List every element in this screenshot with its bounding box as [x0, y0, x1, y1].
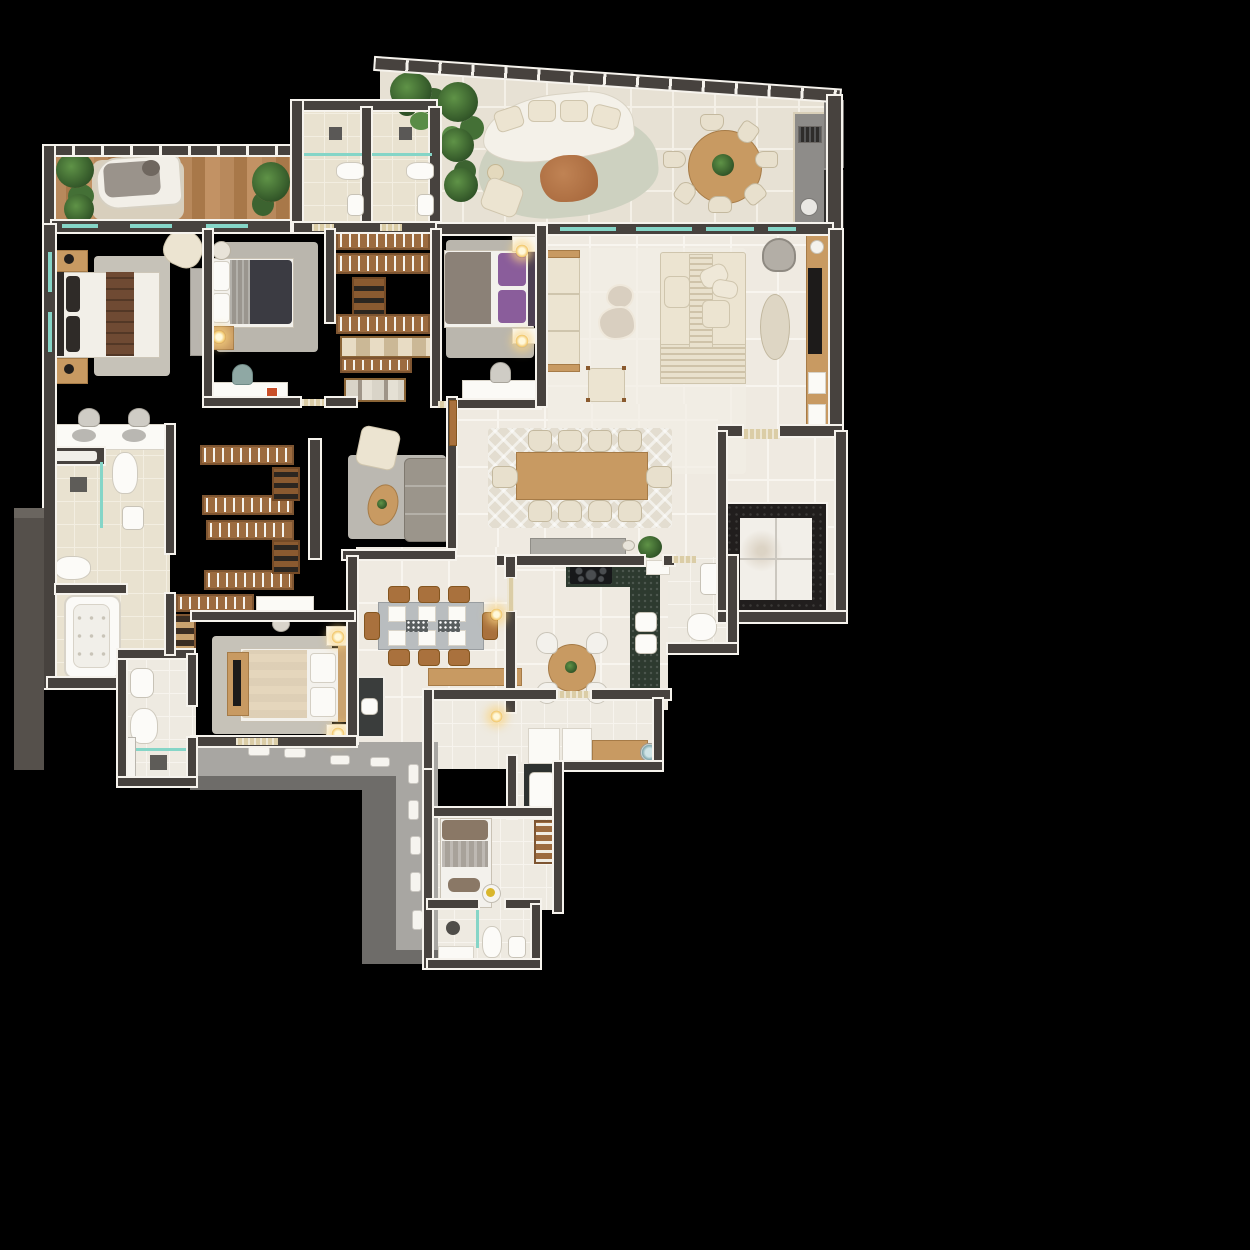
kitchen-table-plant: [565, 661, 577, 673]
ottoman-large: [598, 306, 636, 340]
toilet: [336, 162, 364, 180]
bedroom4-headboard: [338, 646, 346, 722]
closet-rack: [340, 357, 412, 373]
terrace-table-plant: [712, 154, 734, 176]
kitchen-door-threshold: [507, 578, 514, 611]
closet-rack: [336, 253, 430, 274]
dining-chair: [558, 430, 582, 452]
oval-travertine-table: [760, 294, 790, 360]
lounge-cushion: [702, 300, 730, 328]
shower-drain: [70, 477, 87, 492]
side-table-flowers: [486, 888, 495, 897]
floor-plan-canvas: [0, 0, 1250, 1250]
bed3-living-wall: [537, 226, 546, 406]
threshold: [236, 738, 278, 745]
laundry-appliance: [562, 728, 592, 764]
terrace-chair: [755, 151, 778, 168]
table-lamp-icon: [64, 364, 74, 374]
accent-chair: [588, 368, 625, 402]
service-bed-top-wall: [428, 808, 562, 816]
laundry-left-wall: [424, 690, 432, 772]
elevator-marble-cab: [740, 518, 812, 600]
vanity-stool: [78, 408, 100, 427]
sconce-glow: [490, 608, 503, 621]
shoe-shelf: [352, 277, 386, 317]
laundry-right-wall: [654, 699, 662, 769]
bathtub-basin: [73, 604, 110, 668]
laundry-cabinet: [528, 728, 560, 764]
window-glass: [206, 224, 248, 228]
masterbath-east-wall-lower: [166, 594, 174, 654]
tub-room-wall: [56, 585, 126, 593]
pedestal-sink: [347, 194, 364, 216]
service-left-wall: [424, 770, 432, 968]
window-glass: [62, 224, 98, 228]
balcony-left-wall: [44, 146, 54, 232]
bath4-top-wall: [118, 650, 194, 658]
desk-chair: [490, 362, 511, 383]
powder-toilet: [687, 613, 717, 641]
bath4-left-wall: [118, 650, 126, 786]
corridor-door-leaf: [412, 910, 423, 930]
service-bath-right-wall: [532, 905, 540, 967]
place-setting: [448, 630, 466, 646]
service-bed-blanket: [442, 841, 488, 867]
closet2-east-wall: [310, 440, 320, 558]
toilet: [406, 162, 434, 180]
threshold: [302, 399, 324, 406]
bedroom2-pillow: [212, 293, 230, 323]
dining-chair: [646, 466, 672, 488]
bed4-top-wall: [192, 612, 354, 620]
living-right-wall: [830, 230, 842, 432]
breakfast-chair: [448, 649, 470, 666]
bed2-bottom-wall: [204, 398, 300, 406]
stone-console: [530, 538, 626, 558]
towel-niche: [53, 451, 97, 461]
master-headboard: [54, 272, 64, 356]
shower-glass: [100, 462, 103, 528]
hall-right-wall: [836, 432, 846, 620]
corridor-door-leaf: [248, 746, 270, 756]
sideboard-tray: [808, 404, 826, 426]
service-bath-divider: [428, 900, 478, 908]
corridor-door-leaf: [408, 800, 419, 820]
bedroom3-desk: [462, 380, 538, 402]
sconce-glow: [490, 710, 503, 723]
bed2-closet-wall: [326, 230, 334, 322]
window-glass: [48, 252, 52, 292]
laundry-bottom-wall: [558, 762, 662, 770]
console-bowl: [622, 540, 635, 551]
service-toilet: [482, 926, 502, 958]
kitchen-bottom-wall-2: [592, 690, 670, 699]
balcony-plant: [252, 162, 290, 202]
terrace-chair: [708, 196, 732, 213]
lounge-slat-deck: [660, 344, 746, 384]
tv-flat-icon: [233, 660, 241, 706]
dining-chair: [588, 500, 612, 522]
console-plant: [638, 536, 662, 558]
bed3-top-wall: [437, 224, 547, 234]
balcony-plant: [64, 194, 94, 224]
living-sofa: [545, 254, 580, 368]
window-glass: [560, 227, 616, 231]
bedroom4-pillow: [310, 653, 336, 683]
window-glass: [768, 227, 796, 231]
closet2-rack: [206, 520, 294, 540]
place-setting: [418, 630, 436, 646]
dining-table: [516, 452, 648, 500]
terrace-plant: [440, 128, 474, 162]
service-bottom-wall: [428, 960, 540, 968]
bedroom2-blanket-gray: [230, 260, 250, 324]
terrace-chair: [663, 151, 686, 168]
corridor-door-leaf: [284, 748, 306, 758]
bbq-sink: [800, 198, 818, 216]
daybed-pillow: [142, 160, 160, 176]
balcony-plant: [56, 152, 94, 188]
nook-table-plant: [377, 499, 387, 509]
dining-chair: [528, 430, 552, 452]
dining-chair: [492, 466, 518, 488]
corridor-door-leaf: [408, 764, 419, 784]
master-bed2-wall: [204, 230, 212, 406]
master-tv-panel: [190, 268, 205, 356]
nightstand-lamp-glow: [515, 334, 529, 348]
threshold: [380, 224, 402, 231]
shower-glass: [476, 908, 479, 948]
place-setting: [388, 606, 406, 622]
toilet: [112, 452, 138, 494]
terrace-plant: [438, 82, 478, 122]
bathroom4-sink: [130, 668, 154, 698]
bedroom2-pillow: [212, 261, 230, 291]
bedroom4-pillow: [310, 687, 336, 717]
desk-chair: [232, 364, 253, 385]
window-glass: [48, 312, 52, 352]
open-door-leaf: [449, 400, 457, 446]
terrace-plant: [444, 168, 478, 202]
bedroom2-duvet: [250, 260, 292, 324]
sofa-cushion: [560, 100, 588, 122]
closet2-rack: [176, 594, 254, 612]
shower-head-icon: [329, 127, 342, 140]
table-tray: [406, 620, 428, 632]
bath4-bottom-wall: [118, 778, 196, 786]
kitchen-sink: [635, 612, 657, 632]
terrace-coffee-table: [540, 155, 598, 202]
laundry-tank-sink: [529, 772, 555, 810]
entry-threshold: [742, 429, 780, 439]
corridor-door-leaf: [410, 836, 421, 855]
breakfast-chair: [388, 586, 410, 603]
dining-chair: [618, 500, 642, 522]
shower-glass: [372, 153, 432, 156]
swing-chair: [762, 238, 796, 272]
corridor-door-leaf: [370, 757, 390, 767]
vanity-basin: [72, 429, 96, 442]
breakfast-chair: [388, 649, 410, 666]
service-right-wall: [554, 762, 562, 912]
master-pillow: [66, 316, 80, 352]
closet1-bottom-wall: [326, 398, 356, 406]
shower-glass: [304, 153, 362, 156]
bed4-east-wall: [348, 557, 357, 743]
service-bed-cushion: [448, 878, 480, 892]
wall-lamp-glow: [212, 330, 226, 344]
terrace-chair: [700, 114, 724, 131]
closet-bed3-wall: [432, 230, 440, 406]
hall-bottom-wall: [718, 612, 846, 622]
terrace-right-wall: [828, 96, 841, 230]
lounge-cushion: [664, 276, 690, 308]
hall-left-wall: [718, 432, 726, 614]
place-setting: [388, 630, 406, 646]
kitchen-top-wall: [497, 556, 644, 565]
left-outer-wall: [44, 225, 55, 688]
tv-flat-icon: [808, 268, 822, 354]
breakfast-chair: [364, 612, 380, 640]
corridor-door-leaf: [410, 872, 421, 892]
powder-bottom-wall: [668, 644, 737, 653]
masterbath-east-wall-upper: [166, 425, 174, 553]
dining-chair: [618, 430, 642, 452]
foyer-wall: [780, 426, 842, 436]
bedroom3-pillow-purple: [498, 290, 526, 323]
service-sink: [508, 936, 526, 958]
table-lamp-icon: [64, 254, 74, 264]
corridor-door-leaf: [330, 755, 350, 765]
sideboard-tray: [808, 372, 826, 394]
bath4-right-wall-upper: [188, 655, 196, 705]
powder-right-wall: [728, 556, 737, 652]
kitchen-bottom-wall: [430, 690, 556, 699]
bar-sink: [361, 698, 378, 715]
nightstand-lamp-glow: [515, 244, 529, 258]
pedestal-sink: [417, 194, 434, 216]
kitchen-west-wall-upper: [506, 557, 515, 577]
dining-chair: [528, 500, 552, 522]
window-glass: [130, 224, 172, 228]
threshold: [558, 691, 590, 698]
bathrooms-left-wall: [292, 101, 302, 231]
shoe-shelf: [272, 467, 300, 501]
bedroom3-duvet-gray: [445, 252, 491, 324]
corridor-outer-band-vertical: [362, 790, 396, 964]
kitchen-sink: [635, 634, 657, 654]
shower-drain: [150, 755, 167, 770]
service-bed-pillow: [442, 820, 488, 840]
shower-head-icon: [446, 921, 460, 935]
outer-shadow-block: [14, 508, 44, 518]
living-sofa-frame: [545, 250, 580, 258]
vanity-stool: [128, 408, 150, 427]
sideboard-decor: [810, 240, 824, 254]
nook-sofa: [404, 458, 450, 542]
threshold: [672, 556, 696, 563]
bedroom4-duvet: [241, 650, 307, 718]
table-tray: [438, 620, 460, 632]
breakfast-chair: [418, 586, 440, 603]
bidet-sink: [122, 506, 144, 530]
breakfast-chair: [418, 649, 440, 666]
cooktop-burners: [573, 567, 609, 582]
kitchen-chair: [536, 632, 558, 654]
basket-shelf: [340, 336, 432, 358]
master-bed-runner: [106, 272, 134, 356]
master-pillow: [66, 276, 80, 312]
balcony-top-wall: [46, 146, 292, 155]
vanity-basin: [122, 429, 146, 442]
sofa-cushion: [528, 100, 556, 122]
window-glass: [636, 227, 692, 231]
bedroom3-headboard: [528, 250, 536, 326]
closet-rack: [336, 314, 430, 334]
outer-shadow-block: [14, 510, 44, 770]
closet2-rack: [200, 445, 294, 465]
window-glass: [706, 227, 754, 231]
shoe-shelf: [272, 540, 300, 574]
accent-chair-posts: [586, 366, 590, 370]
nook-armchair: [354, 424, 401, 471]
nook-south-wall: [343, 551, 455, 559]
living-sofa-frame: [545, 364, 580, 372]
shower-head-icon: [399, 127, 412, 140]
wc-toilet: [55, 556, 91, 580]
breakfast-chair: [448, 586, 470, 603]
bath-bottom-wall: [48, 678, 126, 688]
bed3-bottom-wall: [458, 400, 540, 408]
bedroom2-round-table: [212, 241, 231, 260]
grill-icon: [798, 126, 822, 143]
dining-chair: [588, 430, 612, 452]
nightstand-lamp-glow: [331, 630, 345, 644]
dining-chair: [558, 500, 582, 522]
kitchen-chair: [586, 632, 608, 654]
